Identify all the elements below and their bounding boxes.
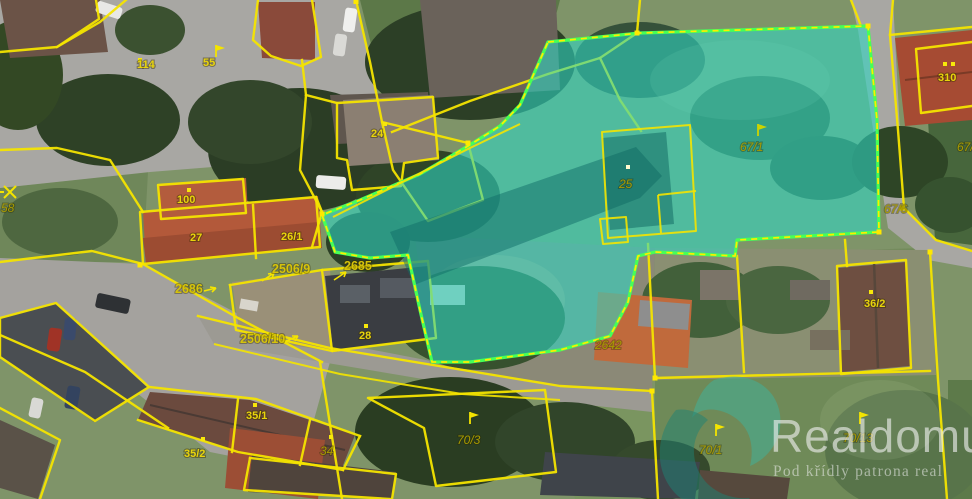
parcel-label: 26/1 <box>281 231 302 243</box>
boundary-node <box>877 230 882 235</box>
boundary-node <box>866 24 871 29</box>
parcel-label: 28 <box>359 330 371 342</box>
parcel-label: 70/3 <box>457 433 481 447</box>
building-dot <box>383 122 387 126</box>
building-dot <box>626 165 630 169</box>
parcel-label: 67/1 <box>740 140 763 154</box>
parcel-label: 34 <box>320 444 334 458</box>
parcel-label: 24 <box>371 128 384 140</box>
watermark-tagline: Pod křídly patrona real <box>773 463 943 480</box>
building-dot <box>364 324 368 328</box>
map-viewport[interactable]: 114 55 24 100 27 26/1 2506/9 2685 2686 2… <box>0 0 972 499</box>
parcel-label: 67/7 <box>957 140 972 154</box>
watermark-brand: Realdomus <box>770 410 972 462</box>
parcel-label: 27 <box>190 232 202 244</box>
parcel-label: 55 <box>203 57 215 69</box>
parcel-label: 58 <box>1 201 15 215</box>
parcel-label: 310 <box>938 72 956 84</box>
parcel-label: 2506/9 <box>272 262 310 276</box>
building-roof <box>790 280 830 300</box>
boundary-node <box>466 141 471 146</box>
boundary-node <box>928 250 933 255</box>
building-dot <box>943 62 947 66</box>
parcel-label: 36/2 <box>864 298 885 310</box>
building-under-selection <box>602 132 674 230</box>
boundary-node <box>653 376 658 381</box>
boundary-node <box>635 31 640 36</box>
parcel-label: 25 <box>618 177 633 191</box>
building-dot <box>253 403 257 407</box>
building-roof <box>0 0 108 58</box>
boundary-node <box>138 263 143 268</box>
parcel-label: 70/1 <box>699 443 722 457</box>
boundary-node <box>320 212 325 217</box>
parcel-label: 2506/10 <box>240 332 285 346</box>
boundary-node <box>650 389 655 394</box>
cadastral-map[interactable]: 114 55 24 100 27 26/1 2506/9 2685 2686 2… <box>0 0 972 499</box>
parcel-label: 2686 <box>175 282 203 296</box>
parcel-label: 114 <box>137 59 156 71</box>
boundary-node <box>354 0 359 4</box>
building-dot <box>201 437 205 441</box>
building-dot <box>869 290 873 294</box>
building-roof <box>810 330 850 350</box>
building-dot <box>329 435 333 439</box>
parcel-label: 100 <box>177 194 195 206</box>
parcel-label: 35/1 <box>246 410 267 422</box>
building-roof <box>700 270 740 300</box>
parcel-label: 35/2 <box>184 448 205 460</box>
building-dot <box>951 62 955 66</box>
parcel-label: 67/6 <box>884 202 908 216</box>
building-dot <box>187 188 191 192</box>
parcel-label: 2642 <box>594 338 622 352</box>
building-roof <box>343 95 439 166</box>
parcel-label: 2685 <box>344 259 372 273</box>
car <box>316 175 347 190</box>
